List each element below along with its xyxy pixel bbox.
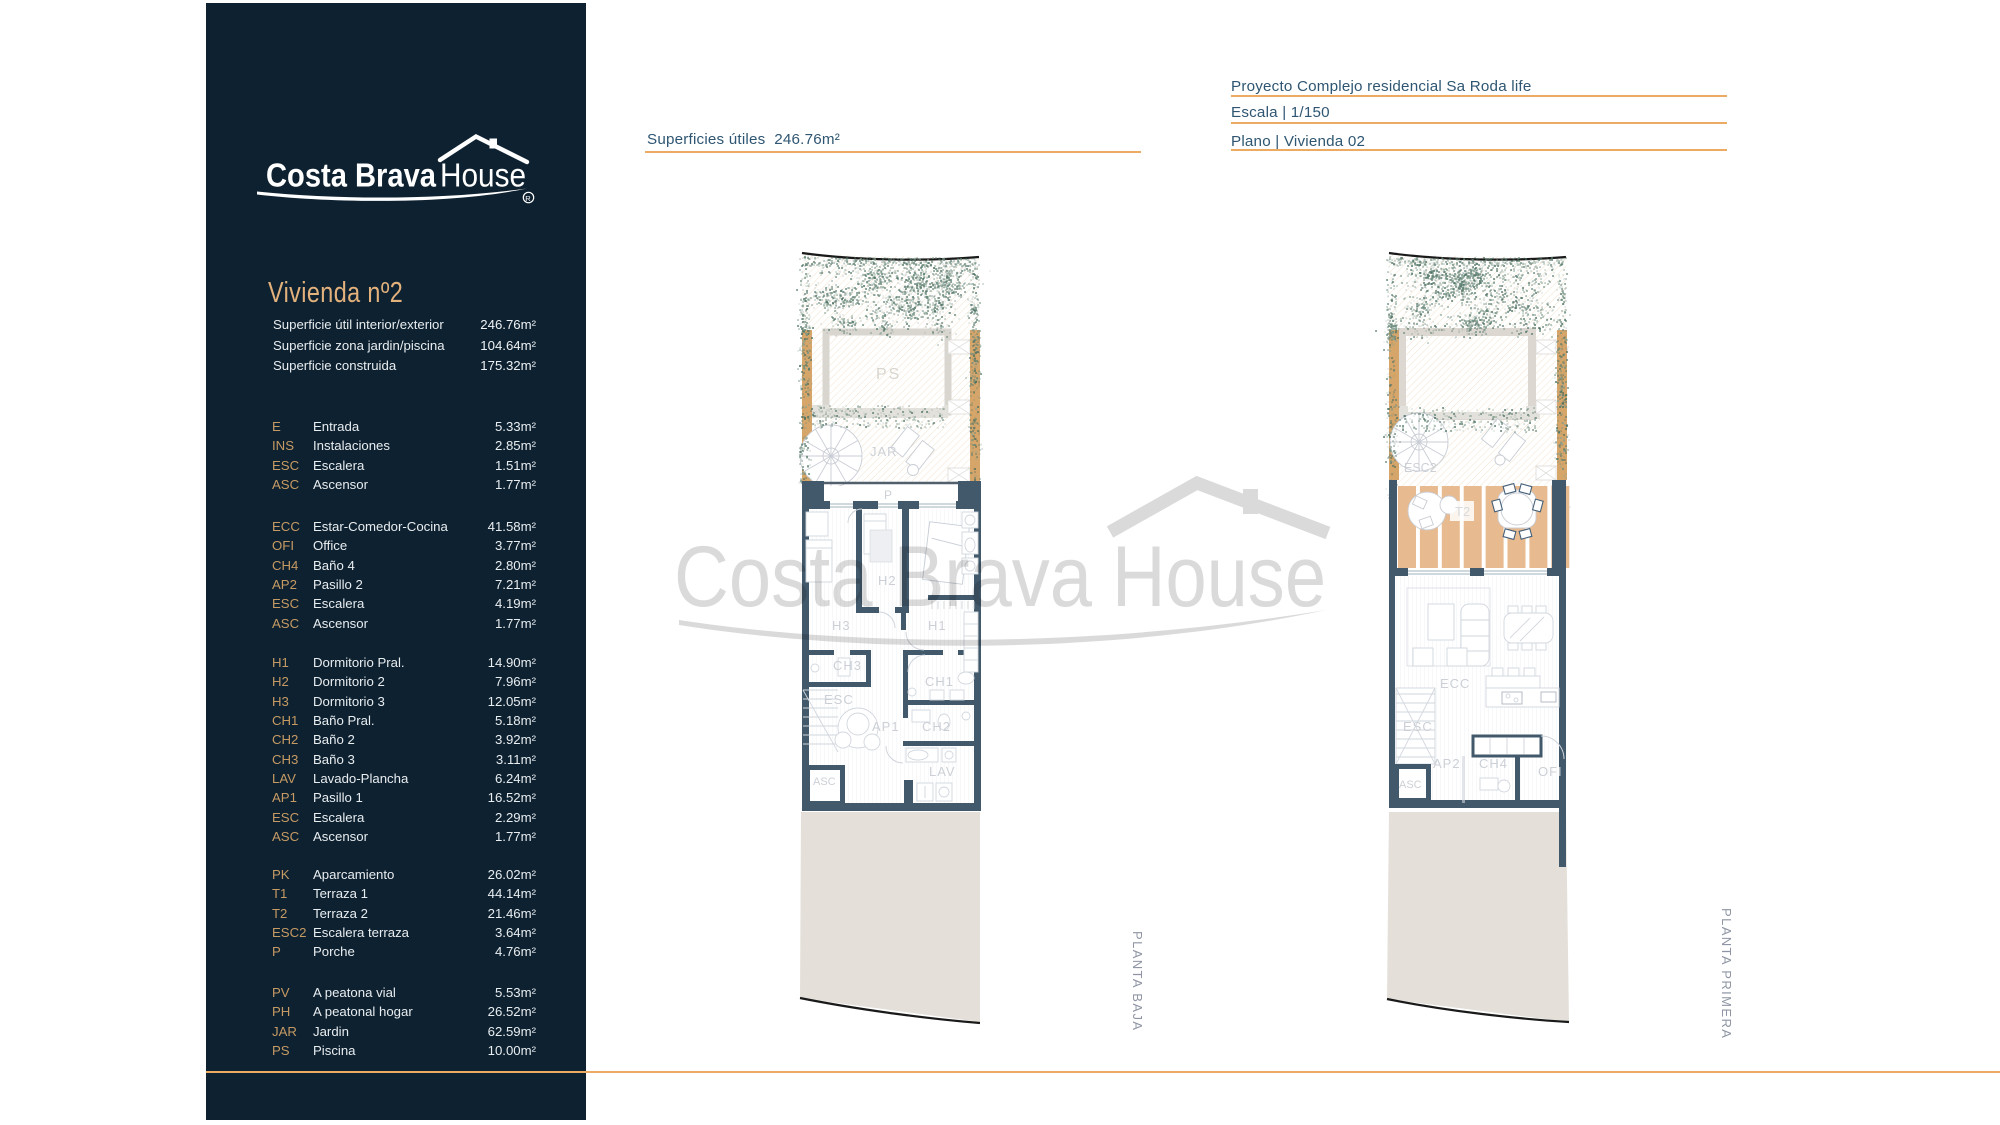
svg-text:AP2: AP2	[1433, 756, 1461, 771]
svg-text:House: House	[1112, 529, 1326, 625]
svg-text:AP1: AP1	[872, 719, 900, 734]
svg-text:ASC: ASC	[1399, 779, 1422, 791]
svg-text:Costa Brava: Costa Brava	[674, 529, 1092, 625]
svg-text:T2: T2	[1455, 504, 1470, 519]
svg-text:OFI: OFI	[1538, 764, 1563, 779]
svg-text:PLANTA PRIMERA: PLANTA PRIMERA	[1719, 908, 1734, 1039]
svg-text:LAV: LAV	[929, 764, 956, 779]
svg-text:CH2: CH2	[922, 719, 951, 734]
svg-text:PS: PS	[876, 366, 901, 383]
svg-text:ESC: ESC	[1403, 719, 1433, 734]
svg-text:ECC: ECC	[1440, 676, 1470, 691]
svg-text:PLANTA BAJA: PLANTA BAJA	[1130, 931, 1145, 1031]
svg-text:CH4: CH4	[1479, 756, 1508, 771]
svg-text:ASC: ASC	[813, 776, 836, 788]
